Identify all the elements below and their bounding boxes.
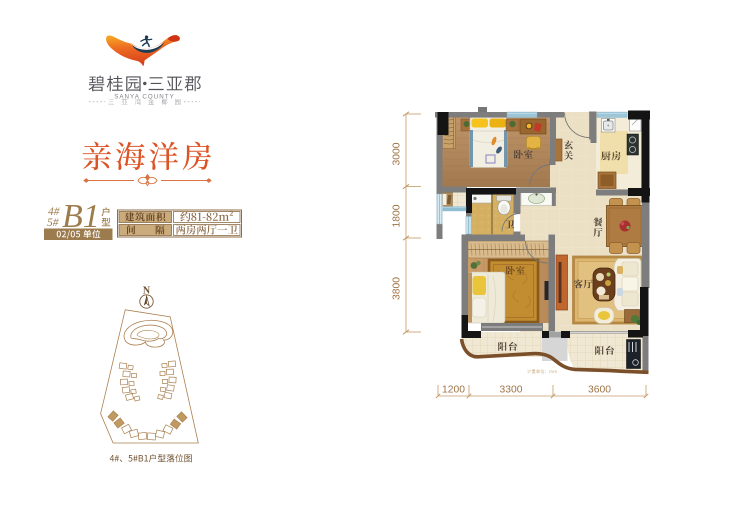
svg-text:1200: 1200 — [442, 385, 465, 396]
svg-text:3800: 3800 — [392, 277, 403, 300]
svg-text:3000: 3000 — [392, 142, 403, 165]
svg-text:1800: 1800 — [392, 204, 403, 227]
svg-text:3600: 3600 — [588, 385, 611, 396]
svg-text:3300: 3300 — [500, 385, 523, 396]
svg-text:4#5#: 4#5# — [47, 206, 60, 229]
